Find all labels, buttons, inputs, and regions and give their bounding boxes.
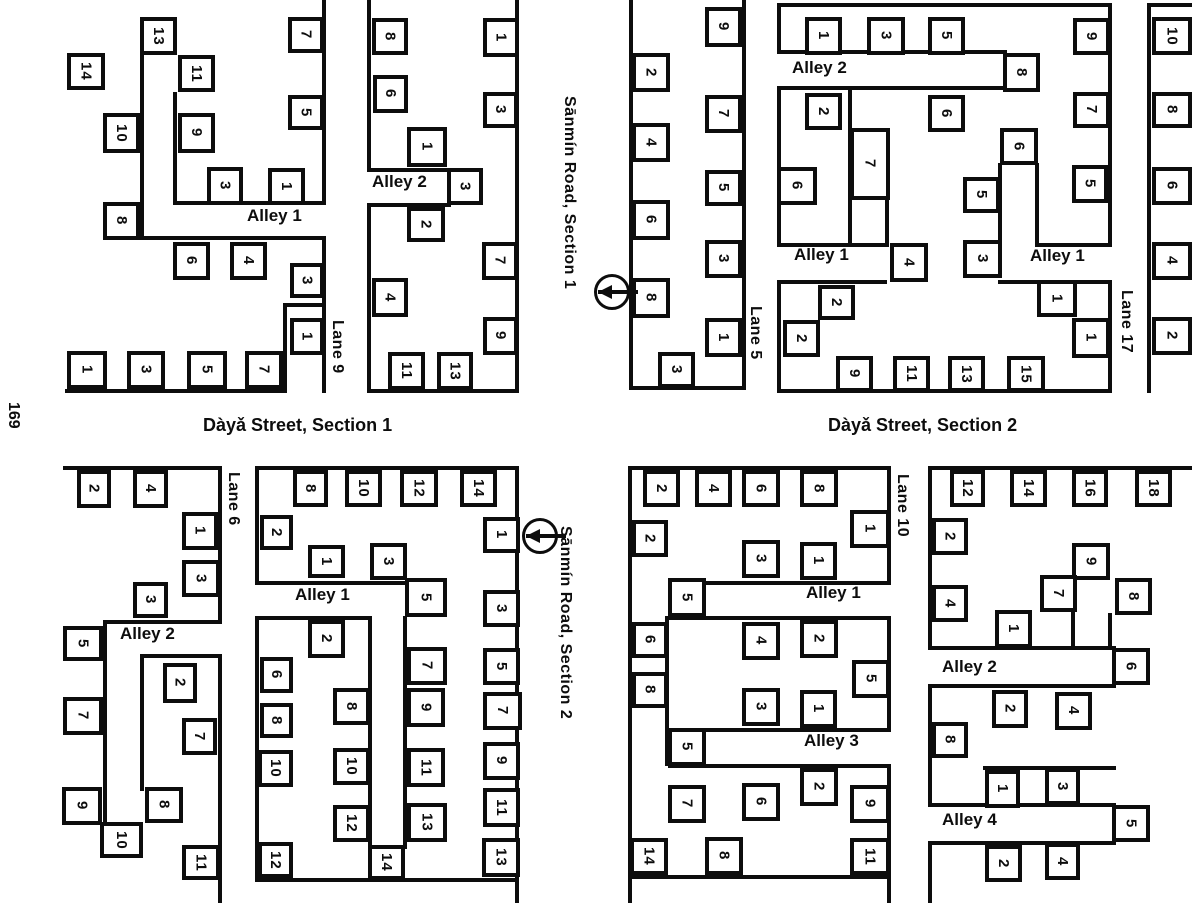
house-number-box: 1 xyxy=(67,351,107,389)
map-page: 1314111093186475311357861324137911132468… xyxy=(0,0,1192,903)
house-number-box: 1 xyxy=(407,127,447,167)
house-number-box: 3 xyxy=(705,240,742,278)
house-number: 3 xyxy=(194,574,209,583)
map-line xyxy=(777,280,887,284)
house-number-box: 4 xyxy=(890,243,928,282)
house-number: 11 xyxy=(863,848,878,866)
house-number-box: 1 xyxy=(308,545,345,578)
house-number: 9 xyxy=(419,703,434,712)
house-number: 1 xyxy=(1050,294,1065,303)
map-line xyxy=(367,0,371,170)
house-number: 11 xyxy=(399,362,414,380)
house-number: 1 xyxy=(319,557,334,566)
house-number: 4 xyxy=(902,258,917,267)
alley-label: Alley 1 xyxy=(794,245,849,265)
house-number-box: 3 xyxy=(447,168,483,205)
house-number-box: 1 xyxy=(1072,318,1110,358)
house-number: 5 xyxy=(494,662,509,671)
house-number: 1 xyxy=(193,526,208,535)
house-number-box: 2 xyxy=(632,53,670,92)
house-number-box: 15 xyxy=(1007,356,1045,392)
house-number: 11 xyxy=(904,365,919,383)
house-number-box: 5 xyxy=(963,177,1000,213)
house-number: 2 xyxy=(654,484,669,493)
house-number-box: 8 xyxy=(1003,53,1040,92)
house-number-box: 5 xyxy=(705,170,742,206)
house-number: 6 xyxy=(754,484,769,493)
map-line xyxy=(1108,613,1112,650)
house-number-box: 6 xyxy=(928,95,965,132)
house-number-box: 2 xyxy=(992,690,1028,728)
house-number: 8 xyxy=(1165,105,1180,114)
house-number: 14 xyxy=(79,62,94,81)
map-line xyxy=(103,620,107,826)
map-line xyxy=(928,803,1116,807)
house-number-box: 8 xyxy=(260,703,293,738)
house-number: 8 xyxy=(114,216,129,225)
house-number: 8 xyxy=(303,484,318,493)
house-number: 7 xyxy=(863,159,878,168)
map-line xyxy=(777,86,1007,90)
house-number-box: 8 xyxy=(705,837,743,875)
house-number: 3 xyxy=(669,365,684,374)
map-line xyxy=(367,205,371,393)
house-number-box: 5 xyxy=(1112,805,1150,842)
house-number-box: 11 xyxy=(388,352,425,390)
house-number: 8 xyxy=(643,685,658,694)
house-number-box: 11 xyxy=(407,748,445,787)
house-number: 3 xyxy=(381,557,396,566)
house-number-box: 13 xyxy=(482,838,520,877)
house-number: 3 xyxy=(879,31,894,40)
house-number-box: 14 xyxy=(460,470,497,507)
house-number: 1 xyxy=(863,524,878,533)
house-number: 3 xyxy=(300,276,315,285)
alley-label: Alley 2 xyxy=(942,657,997,677)
north-arrow-icon xyxy=(522,518,558,554)
house-number-box: 2 xyxy=(407,207,445,242)
map-line xyxy=(777,389,1112,393)
alley-label: Alley 2 xyxy=(792,58,847,78)
house-number: 3 xyxy=(754,702,769,711)
house-number-box: 1 xyxy=(850,510,890,548)
house-number: 4 xyxy=(241,256,256,265)
house-number-box: 1 xyxy=(483,18,519,57)
house-number-box: 8 xyxy=(932,722,968,758)
house-number: 10 xyxy=(344,757,359,776)
house-number-box: 9 xyxy=(483,742,520,780)
house-number: 3 xyxy=(143,595,158,604)
house-number: 7 xyxy=(257,365,272,374)
house-number-box: 3 xyxy=(290,263,324,298)
house-number: 9 xyxy=(1084,32,1099,41)
house-number-box: 6 xyxy=(173,242,210,280)
house-number: 8 xyxy=(344,702,359,711)
house-number: 1 xyxy=(1084,333,1099,342)
north-arrow-head xyxy=(526,529,540,543)
house-number-box: 1 xyxy=(805,17,842,55)
lane-label: Lane 6 xyxy=(224,472,242,526)
house-number: 16 xyxy=(1083,479,1098,498)
house-number: 9 xyxy=(493,331,508,340)
house-number: 9 xyxy=(75,801,90,810)
house-number: 9 xyxy=(847,369,862,378)
house-number-box: 2 xyxy=(1152,317,1192,355)
house-number: 7 xyxy=(192,732,207,741)
house-number-box: 10 xyxy=(1152,17,1192,55)
house-number-box: 8 xyxy=(800,470,838,507)
house-number: 10 xyxy=(114,831,129,850)
alley-label: Alley 3 xyxy=(804,731,859,751)
house-number-box: 3 xyxy=(370,543,407,580)
house-number: 8 xyxy=(717,851,732,860)
house-number: 9 xyxy=(494,756,509,765)
house-number: 3 xyxy=(975,254,990,263)
house-number-box: 3 xyxy=(483,590,520,627)
house-number: 6 xyxy=(939,109,954,118)
house-number-box: 2 xyxy=(632,520,668,557)
house-number: 2 xyxy=(269,528,284,537)
map-line xyxy=(928,466,932,650)
house-number: 5 xyxy=(939,31,954,40)
house-number-box: 5 xyxy=(63,626,103,661)
house-number-box: 9 xyxy=(836,356,873,392)
house-number-box: 2 xyxy=(932,518,968,555)
house-number: 8 xyxy=(383,32,398,41)
map-line xyxy=(777,282,781,393)
house-number-box: 5 xyxy=(928,17,965,55)
house-number-box: 8 xyxy=(632,278,670,318)
map-line xyxy=(65,389,287,393)
house-number: 2 xyxy=(1003,704,1018,713)
house-number-box: 11 xyxy=(182,845,220,880)
house-number-box: 6 xyxy=(1000,128,1038,165)
house-number-box: 3 xyxy=(658,352,695,388)
north-arrow-head xyxy=(598,285,612,299)
house-number: 18 xyxy=(1146,479,1161,498)
house-number-box: 14 xyxy=(630,838,668,875)
house-number-box: 2 xyxy=(783,320,820,357)
house-number-box: 2 xyxy=(163,663,197,703)
map-line xyxy=(322,238,326,393)
map-line xyxy=(1147,3,1192,7)
house-number: 12 xyxy=(960,479,975,498)
house-number: 3 xyxy=(1055,782,1070,791)
house-number-box: 10 xyxy=(333,748,370,785)
house-number: 6 xyxy=(1124,662,1139,671)
house-number: 11 xyxy=(189,65,204,83)
house-number: 9 xyxy=(1084,557,1099,566)
house-number-box: 13 xyxy=(437,352,473,390)
house-number: 2 xyxy=(1165,331,1180,340)
house-number-box: 13 xyxy=(140,17,177,55)
house-number: 1 xyxy=(80,365,95,374)
house-number: 8 xyxy=(943,735,958,744)
house-number: 2 xyxy=(319,634,334,643)
house-number: 5 xyxy=(680,742,695,751)
house-number-box: 12 xyxy=(400,470,438,507)
map-line xyxy=(777,3,781,52)
house-number: 6 xyxy=(383,89,398,98)
house-number-box: 3 xyxy=(182,560,220,597)
house-number-box: 8 xyxy=(1152,92,1192,128)
house-number-box: 3 xyxy=(207,167,243,205)
house-number-box: 7 xyxy=(668,785,706,823)
house-number-box: 1 xyxy=(995,610,1032,648)
alley-label: Alley 4 xyxy=(942,810,997,830)
alley-label: Alley 1 xyxy=(295,585,350,605)
house-number: 13 xyxy=(959,365,974,384)
map-line xyxy=(255,466,259,583)
house-number: 5 xyxy=(864,674,879,683)
house-number: 2 xyxy=(794,334,809,343)
house-number-box: 4 xyxy=(632,123,670,162)
house-number: 10 xyxy=(114,124,129,143)
house-number-box: 9 xyxy=(850,785,890,823)
house-number: 11 xyxy=(419,759,434,777)
house-number-box: 3 xyxy=(483,92,518,128)
house-number: 14 xyxy=(642,847,657,866)
house-number: 14 xyxy=(1021,479,1036,498)
alley-label: Alley 1 xyxy=(1030,246,1085,266)
house-number: 2 xyxy=(643,534,658,543)
house-number: 12 xyxy=(344,814,359,833)
house-number-box: 2 xyxy=(805,93,842,130)
house-number-box: 14 xyxy=(368,845,405,880)
house-number: 7 xyxy=(1084,105,1099,114)
house-number-box: 5 xyxy=(1072,165,1108,203)
street-label: Dàyǎ Street, Section 2 xyxy=(828,415,1017,436)
map-stage: 1314111093186475311357861324137911132468… xyxy=(0,0,1192,903)
house-number: 5 xyxy=(200,365,215,374)
alley-label: Alley 2 xyxy=(120,624,175,644)
house-number: 2 xyxy=(644,68,659,77)
house-number: 7 xyxy=(1051,589,1066,598)
map-line xyxy=(885,198,889,247)
map-line xyxy=(928,841,1116,845)
house-number-box: 3 xyxy=(963,240,1002,278)
house-number: 4 xyxy=(383,293,398,302)
house-number-box: 4 xyxy=(1152,242,1192,280)
house-number-box: 13 xyxy=(407,803,447,842)
house-number: 7 xyxy=(420,661,435,670)
house-number: 10 xyxy=(356,479,371,498)
house-number: 11 xyxy=(194,854,209,872)
house-number-box: 9 xyxy=(705,7,742,47)
house-number-box: 9 xyxy=(407,688,445,727)
house-number: 2 xyxy=(996,859,1011,868)
house-number: 1 xyxy=(995,784,1010,793)
house-number: 11 xyxy=(494,799,509,817)
house-number-box: 3 xyxy=(1045,768,1080,805)
house-number: 8 xyxy=(1014,68,1029,77)
house-number-box: 10 xyxy=(103,113,140,153)
house-number-box: 8 xyxy=(632,672,668,708)
map-line xyxy=(777,3,1112,7)
house-number: 13 xyxy=(448,362,463,381)
house-number-box: 3 xyxy=(127,351,165,389)
house-number: 9 xyxy=(716,22,731,31)
house-number: 13 xyxy=(420,813,435,832)
house-number: 5 xyxy=(1124,819,1139,828)
map-line xyxy=(140,654,222,658)
house-number-box: 13 xyxy=(948,356,985,392)
house-number: 5 xyxy=(419,593,434,602)
house-number-box: 8 xyxy=(145,787,183,823)
house-number: 14 xyxy=(471,479,486,498)
house-number-box: 5 xyxy=(288,95,324,130)
house-number-box: 6 xyxy=(632,622,668,658)
map-line xyxy=(173,92,177,205)
house-number-box: 7 xyxy=(245,351,283,389)
house-number-box: 1 xyxy=(985,770,1020,808)
house-number: 7 xyxy=(716,109,731,118)
map-line xyxy=(1035,163,1039,247)
house-number-box: 5 xyxy=(483,648,520,685)
house-number: 8 xyxy=(1126,592,1141,601)
house-number: 5 xyxy=(680,593,695,602)
lane-label: Lane 9 xyxy=(328,320,346,374)
house-number: 13 xyxy=(151,27,166,46)
house-number: 1 xyxy=(811,556,826,565)
house-number-box: 12 xyxy=(950,470,985,507)
house-number-box: 14 xyxy=(1010,470,1047,507)
house-number-box: 1 xyxy=(800,542,837,580)
house-number-box: 2 xyxy=(308,620,345,658)
house-number: 8 xyxy=(644,293,659,302)
house-number-box: 6 xyxy=(373,75,408,113)
house-number-box: 1 xyxy=(800,690,837,728)
house-number: 8 xyxy=(157,800,172,809)
house-number: 5 xyxy=(1083,179,1098,188)
house-number-box: 4 xyxy=(133,470,168,508)
house-number: 3 xyxy=(754,554,769,563)
house-number: 6 xyxy=(643,635,658,644)
house-number-box: 1 xyxy=(268,168,305,205)
house-number: 14 xyxy=(379,853,394,872)
house-number-box: 7 xyxy=(407,647,447,685)
house-number-box: 8 xyxy=(372,18,408,55)
house-number: 4 xyxy=(1066,706,1081,715)
house-number: 3 xyxy=(716,254,731,263)
house-number: 2 xyxy=(829,298,844,307)
house-number-box: 10 xyxy=(258,750,293,787)
house-number-box: 2 xyxy=(818,285,855,320)
house-number-box: 8 xyxy=(333,688,370,725)
map-line xyxy=(628,875,891,879)
house-number-box: 11 xyxy=(483,788,520,827)
house-number-box: 4 xyxy=(230,242,267,280)
house-number-box: 2 xyxy=(985,845,1022,882)
north-arrow-icon xyxy=(594,274,630,310)
house-number-box: 7 xyxy=(182,718,217,755)
house-number-box: 4 xyxy=(1055,692,1092,730)
house-number-box: 7 xyxy=(705,95,742,133)
house-number: 4 xyxy=(943,599,958,608)
house-number: 5 xyxy=(716,183,731,192)
map-line xyxy=(283,303,287,393)
house-number-box: 1 xyxy=(182,512,218,550)
house-number: 2 xyxy=(173,678,188,687)
house-number: 6 xyxy=(644,215,659,224)
house-number-box: 9 xyxy=(178,113,215,153)
house-number: 6 xyxy=(269,670,284,679)
lane-label: Lane 5 xyxy=(746,306,764,360)
house-number-box: 7 xyxy=(482,242,518,280)
house-number-box: 1 xyxy=(705,318,742,357)
house-number-box: 8 xyxy=(103,202,140,240)
house-number-box: 4 xyxy=(372,278,408,317)
house-number-box: 6 xyxy=(742,783,780,821)
house-number: 5 xyxy=(974,190,989,199)
house-number-box: 5 xyxy=(405,578,447,617)
map-line xyxy=(140,654,144,791)
house-number: 1 xyxy=(279,182,294,191)
house-number-box: 9 xyxy=(1072,543,1110,580)
house-number-box: 3 xyxy=(867,17,905,55)
house-number: 3 xyxy=(493,105,508,114)
house-number-box: 16 xyxy=(1072,470,1108,507)
house-number-box: 3 xyxy=(742,688,780,726)
house-number: 1 xyxy=(816,31,831,40)
house-number: 12 xyxy=(412,479,427,498)
house-number: 4 xyxy=(754,636,769,645)
house-number: 1 xyxy=(1006,624,1021,633)
house-number: 1 xyxy=(716,333,731,342)
house-number: 9 xyxy=(863,799,878,808)
house-number-box: 5 xyxy=(668,578,706,617)
house-number-box: 12 xyxy=(333,805,370,842)
map-line xyxy=(706,581,891,585)
house-number-box: 9 xyxy=(62,787,102,825)
house-number: 7 xyxy=(680,799,695,808)
house-number: 15 xyxy=(1019,365,1034,384)
house-number: 7 xyxy=(76,711,91,720)
map-line xyxy=(1147,3,1151,393)
house-number-box: 4 xyxy=(1045,843,1080,880)
house-number: 1 xyxy=(811,704,826,713)
alley-label: Alley 1 xyxy=(806,583,861,603)
house-number: 10 xyxy=(1165,27,1180,46)
map-line xyxy=(283,303,326,307)
house-number-box: 7 xyxy=(1040,575,1077,612)
house-number: 5 xyxy=(299,108,314,117)
house-number-box: 7 xyxy=(288,17,324,53)
house-number-box: 10 xyxy=(345,470,382,507)
house-number-box: 11 xyxy=(178,55,215,92)
house-number: 12 xyxy=(268,851,283,870)
house-number: 2 xyxy=(87,484,102,493)
house-number-box: 2 xyxy=(77,470,111,508)
alley-label: Alley 1 xyxy=(247,206,302,226)
house-number: 3 xyxy=(494,604,509,613)
page-number: 169 xyxy=(4,402,22,429)
house-number: 7 xyxy=(495,706,510,715)
house-number-box: 18 xyxy=(1135,470,1172,507)
house-number-box: 2 xyxy=(260,515,293,550)
house-number-box: 7 xyxy=(1073,92,1110,128)
house-number-box: 12 xyxy=(258,842,293,878)
house-number-box: 3 xyxy=(742,540,780,578)
house-number-box: 6 xyxy=(1112,648,1150,685)
house-number: 9 xyxy=(189,128,204,137)
house-number: 4 xyxy=(143,484,158,493)
house-number-box: 6 xyxy=(1152,167,1192,205)
house-number-box: 4 xyxy=(932,585,968,622)
lane-label: Lane 10 xyxy=(893,474,911,537)
house-number-box: 7 xyxy=(850,128,890,200)
house-number: 7 xyxy=(299,30,314,39)
